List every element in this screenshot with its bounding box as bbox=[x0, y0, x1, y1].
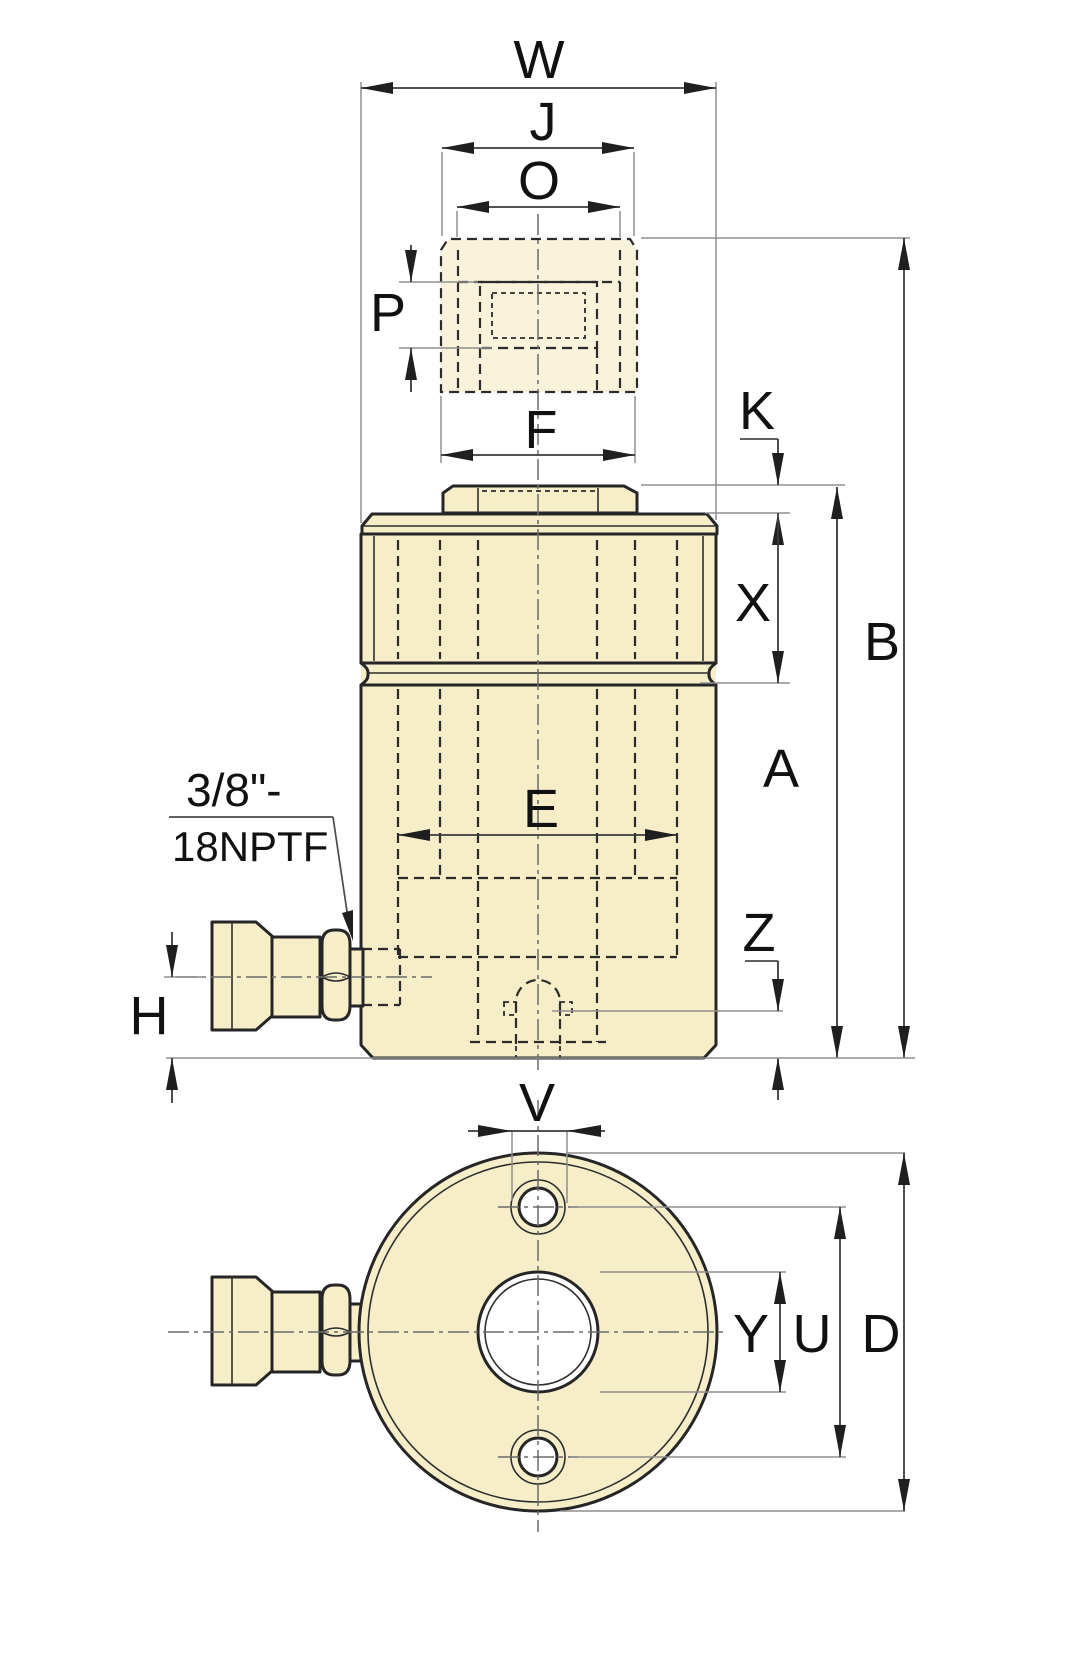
saddle bbox=[443, 486, 637, 513]
dim-label-u: U bbox=[793, 1304, 832, 1364]
collar bbox=[361, 514, 717, 685]
coupler-body bbox=[212, 1277, 272, 1385]
dim-label-w: W bbox=[514, 30, 565, 90]
port-thread-type-text: 18NPTF bbox=[172, 823, 328, 870]
plunger-extended-hidden bbox=[441, 239, 637, 392]
dim-label-p: P bbox=[370, 283, 406, 343]
cylinder-dimension-drawing: W J O P bbox=[0, 0, 1092, 1658]
port-thread-size-text: 3/8"- bbox=[186, 764, 282, 816]
dim-label-d: D bbox=[862, 1304, 901, 1364]
dim-label-o: O bbox=[518, 151, 560, 211]
dim-label-a: A bbox=[763, 739, 799, 799]
hydraulic-coupler-bottom bbox=[212, 1277, 363, 1385]
coupler-body bbox=[212, 922, 272, 1030]
dim-label-k: K bbox=[739, 381, 775, 441]
dim-label-v: V bbox=[519, 1073, 555, 1133]
dim-label-b: B bbox=[864, 612, 900, 672]
dim-label-e: E bbox=[523, 779, 559, 839]
technical-drawing-page: W J O P bbox=[0, 0, 1092, 1658]
dim-label-x: X bbox=[735, 573, 771, 633]
dim-label-y: Y bbox=[733, 1304, 769, 1364]
hydraulic-coupler-side bbox=[212, 922, 363, 1030]
dim-label-z: Z bbox=[743, 903, 776, 963]
dim-label-j: J bbox=[530, 92, 557, 152]
dim-label-f: F bbox=[525, 400, 558, 460]
dim-label-h: H bbox=[130, 986, 169, 1046]
